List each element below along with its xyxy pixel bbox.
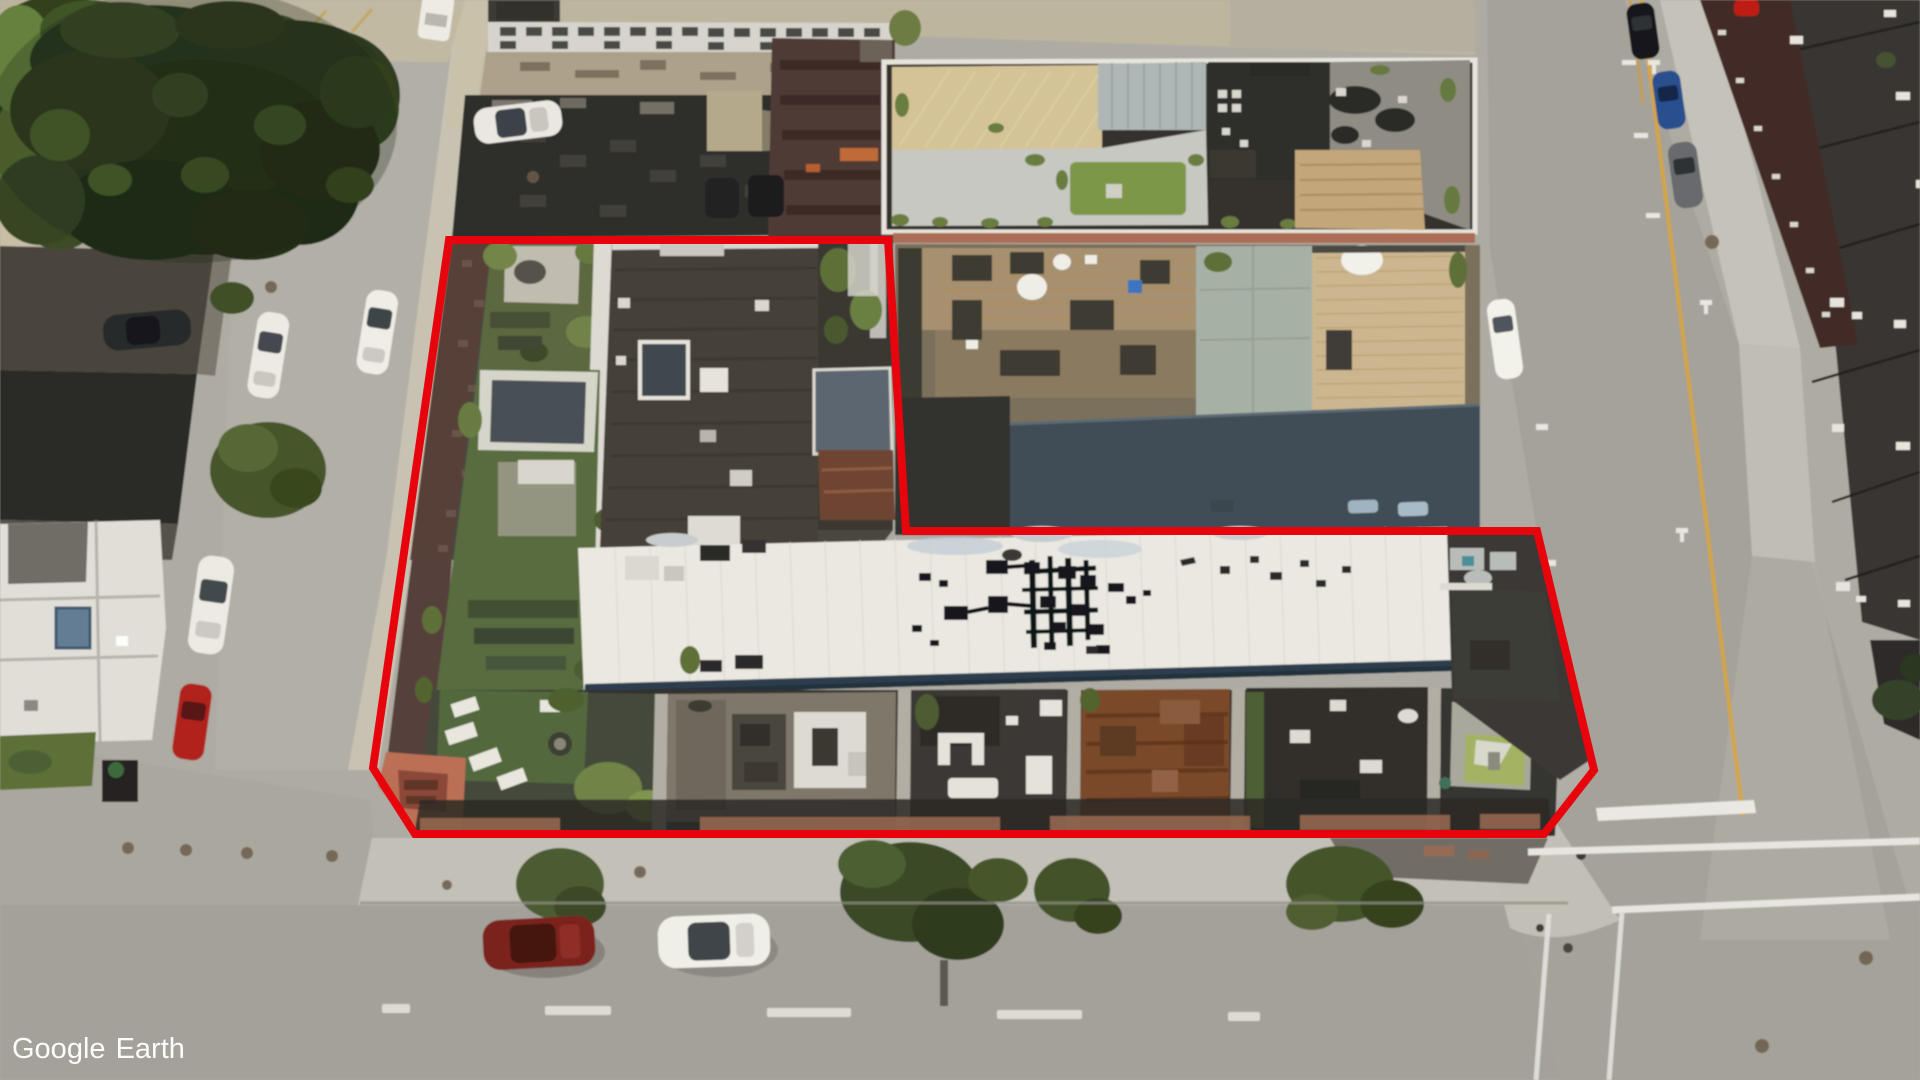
svg-text:Google Earth: Google Earth	[12, 1033, 185, 1065]
